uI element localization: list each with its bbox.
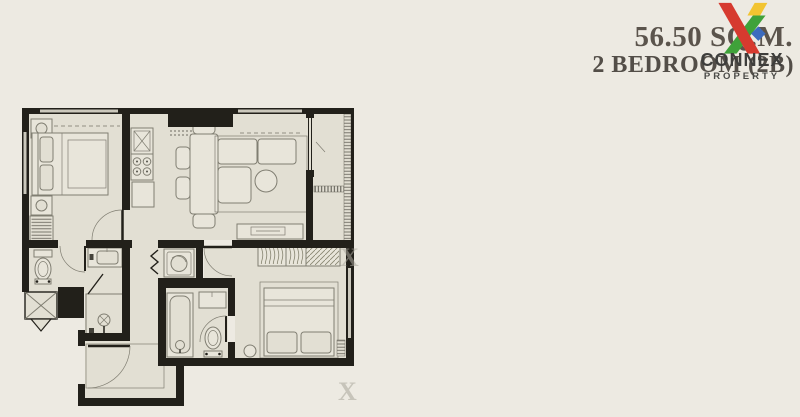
toilet: [34, 250, 52, 284]
sink: [199, 292, 226, 308]
washing-machine: [164, 249, 194, 277]
round-coffee-table: [255, 170, 277, 192]
ac-ledge: [25, 292, 57, 331]
bathtub: [167, 293, 193, 357]
brand-name: CONNEX: [692, 51, 792, 70]
counter: [132, 182, 154, 207]
tv-console: [237, 224, 303, 239]
double-bed: [260, 282, 338, 358]
double-bed: [32, 133, 108, 195]
svg-text:X: X: [338, 377, 357, 406]
louver-strip: [344, 114, 351, 245]
chair: [176, 177, 190, 199]
chair: [176, 147, 190, 169]
balcony-threshold: [314, 186, 344, 192]
floor-plan-image: X X 56.50 SQ.M. 2 BEDROOM (2B) CONNEX PR…: [0, 0, 800, 417]
svg-text:X: X: [340, 243, 359, 272]
brand-watermark: CONNEX PROPERTY: [692, 2, 792, 82]
sink-vanity: [88, 248, 122, 267]
dining-table: [190, 134, 218, 214]
toilet: [204, 327, 222, 357]
wardrobe: [30, 216, 53, 243]
stool: [244, 345, 256, 357]
stove: [131, 154, 153, 180]
shaft-block: [168, 112, 233, 127]
kitchen-sink: [131, 128, 153, 154]
brand-tagline: PROPERTY: [692, 71, 792, 82]
ac-vent: [337, 340, 345, 356]
shaft-diamond: [31, 319, 51, 331]
nightstand: [31, 196, 52, 215]
chair: [193, 214, 215, 228]
